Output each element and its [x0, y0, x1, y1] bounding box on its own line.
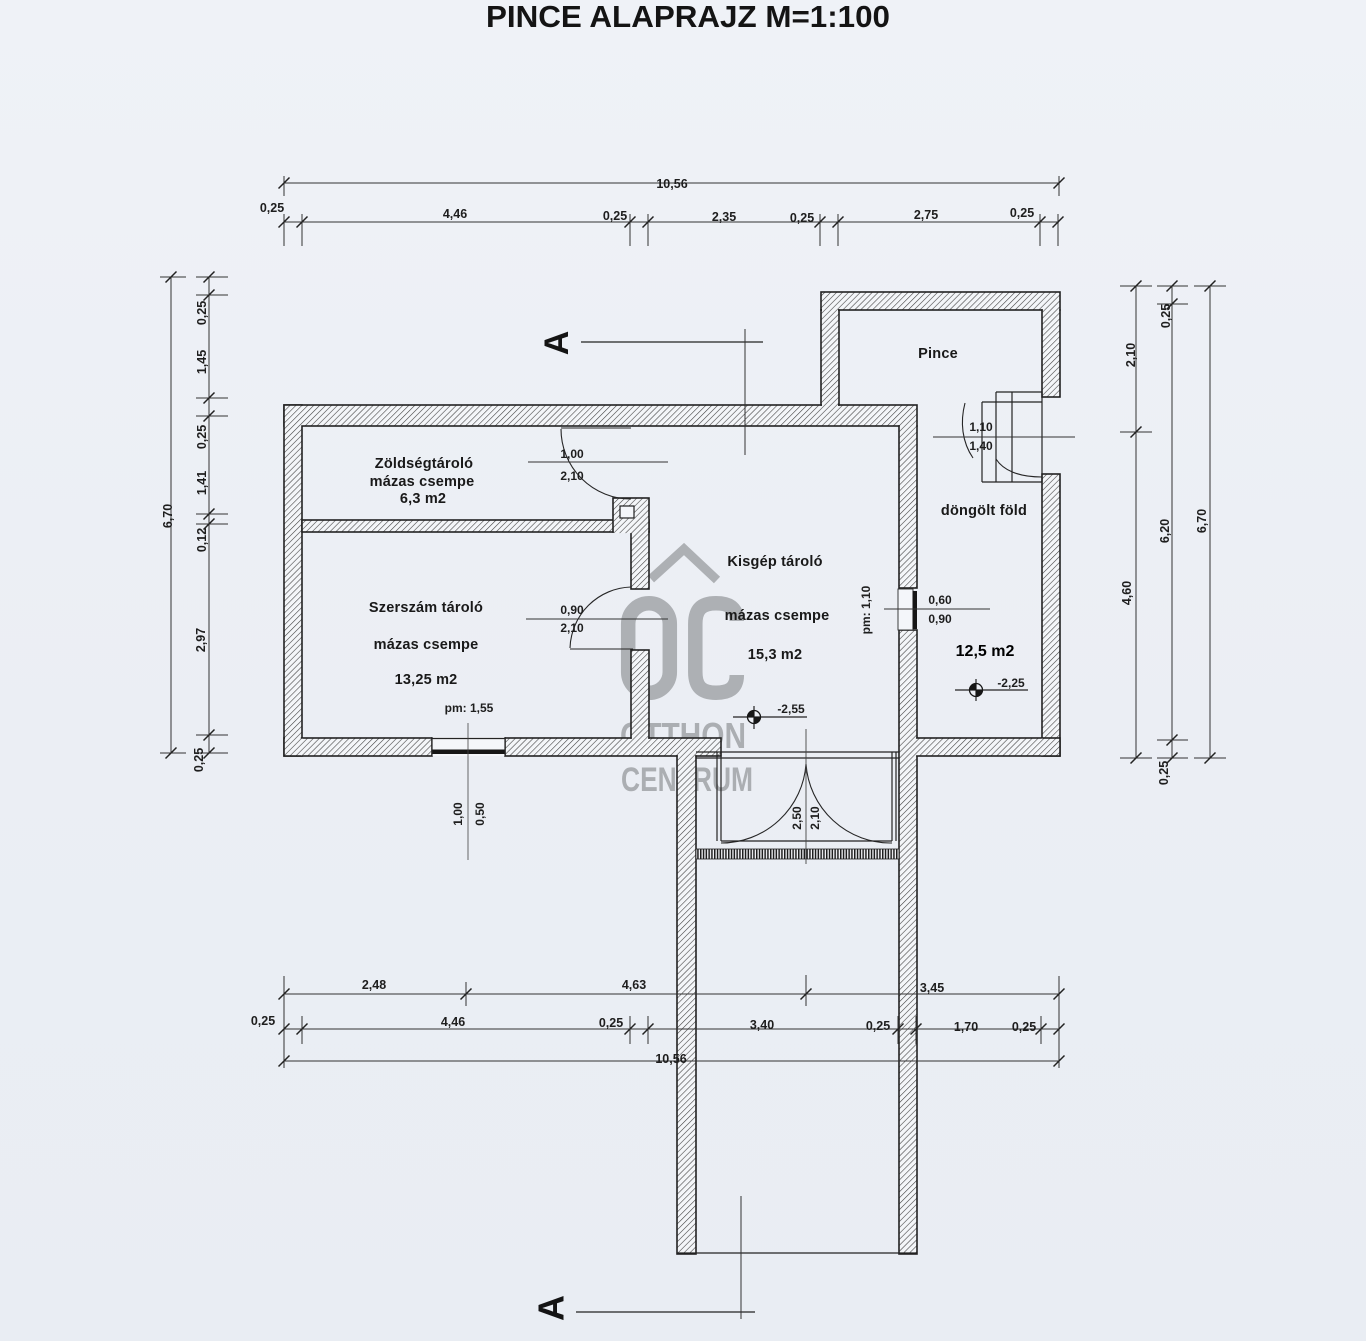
svg-text:1,00: 1,00: [451, 802, 465, 826]
svg-text:13,25 m2: 13,25 m2: [395, 672, 458, 688]
svg-text:2,10: 2,10: [808, 806, 822, 830]
svg-text:0,90: 0,90: [560, 603, 584, 617]
svg-text:10,56: 10,56: [656, 177, 687, 191]
svg-text:Pince: Pince: [918, 346, 958, 362]
svg-text:6,70: 6,70: [161, 504, 175, 528]
svg-text:Szerszám tároló: Szerszám tároló: [369, 600, 483, 616]
svg-text:Zöldségtároló: Zöldségtároló: [375, 456, 473, 472]
svg-text:2,10: 2,10: [1124, 343, 1138, 367]
svg-text:-2,55: -2,55: [777, 702, 805, 716]
svg-text:Kisgép tároló: Kisgép tároló: [727, 554, 822, 570]
svg-text:0,25: 0,25: [1012, 1020, 1036, 1034]
svg-text:3,45: 3,45: [920, 981, 944, 995]
svg-text:0,25: 0,25: [251, 1014, 275, 1028]
svg-text:0,25: 0,25: [603, 209, 627, 223]
svg-text:1,00: 1,00: [560, 447, 584, 461]
svg-text:A: A: [538, 331, 576, 356]
svg-text:15,3 m2: 15,3 m2: [748, 647, 803, 663]
svg-text:0,25: 0,25: [195, 301, 209, 325]
svg-text:mázas csempe: mázas csempe: [725, 608, 830, 624]
svg-text:2,97: 2,97: [194, 628, 208, 652]
svg-text:6,20: 6,20: [1158, 519, 1172, 543]
svg-text:6,3 m2: 6,3 m2: [400, 491, 446, 507]
svg-text:A: A: [531, 1295, 572, 1321]
svg-text:0,25: 0,25: [790, 211, 814, 225]
svg-text:0,25: 0,25: [599, 1016, 623, 1030]
svg-text:0,90: 0,90: [928, 612, 952, 626]
svg-text:2,35: 2,35: [712, 210, 736, 224]
svg-text:mázas csempe: mázas csempe: [374, 637, 479, 653]
svg-text:4,63: 4,63: [622, 978, 646, 992]
svg-text:1,70: 1,70: [954, 1020, 978, 1034]
svg-text:1,41: 1,41: [195, 471, 209, 495]
svg-text:pm: 1,55: pm: 1,55: [445, 701, 494, 715]
svg-text:4,46: 4,46: [441, 1015, 465, 1029]
svg-text:3,40: 3,40: [750, 1018, 774, 1032]
svg-text:pm: 1,10: pm: 1,10: [859, 585, 873, 634]
svg-text:4,60: 4,60: [1120, 581, 1134, 605]
svg-text:10,56: 10,56: [655, 1052, 686, 1066]
svg-text:0,25: 0,25: [1010, 206, 1034, 220]
svg-text:0,25: 0,25: [1157, 761, 1171, 785]
svg-text:1,40: 1,40: [969, 439, 993, 453]
svg-text:0,50: 0,50: [473, 802, 487, 826]
svg-text:2,10: 2,10: [560, 469, 584, 483]
svg-text:0,25: 0,25: [195, 425, 209, 449]
svg-text:PINCE ALAPRAJZ M=1:100: PINCE ALAPRAJZ M=1:100: [486, 0, 890, 34]
svg-text:0,12: 0,12: [195, 528, 209, 552]
svg-text:2,10: 2,10: [560, 621, 584, 635]
svg-text:mázas csempe: mázas csempe: [370, 474, 475, 490]
svg-text:6,70: 6,70: [1195, 509, 1209, 533]
svg-text:1,45: 1,45: [195, 350, 209, 374]
svg-text:4,46: 4,46: [443, 207, 467, 221]
svg-text:12,5 m2: 12,5 m2: [956, 643, 1015, 660]
svg-text:0,25: 0,25: [1159, 304, 1173, 328]
svg-text:-2,25: -2,25: [997, 676, 1025, 690]
svg-text:2,75: 2,75: [914, 208, 938, 222]
svg-text:1,10: 1,10: [969, 420, 993, 434]
svg-text:0,25: 0,25: [192, 748, 206, 772]
svg-text:2,50: 2,50: [790, 806, 804, 830]
svg-text:0,25: 0,25: [866, 1019, 890, 1033]
svg-text:0,60: 0,60: [928, 593, 952, 607]
svg-text:0,25: 0,25: [260, 201, 284, 215]
svg-text:2,48: 2,48: [362, 978, 386, 992]
svg-text:döngölt föld: döngölt föld: [941, 503, 1027, 519]
